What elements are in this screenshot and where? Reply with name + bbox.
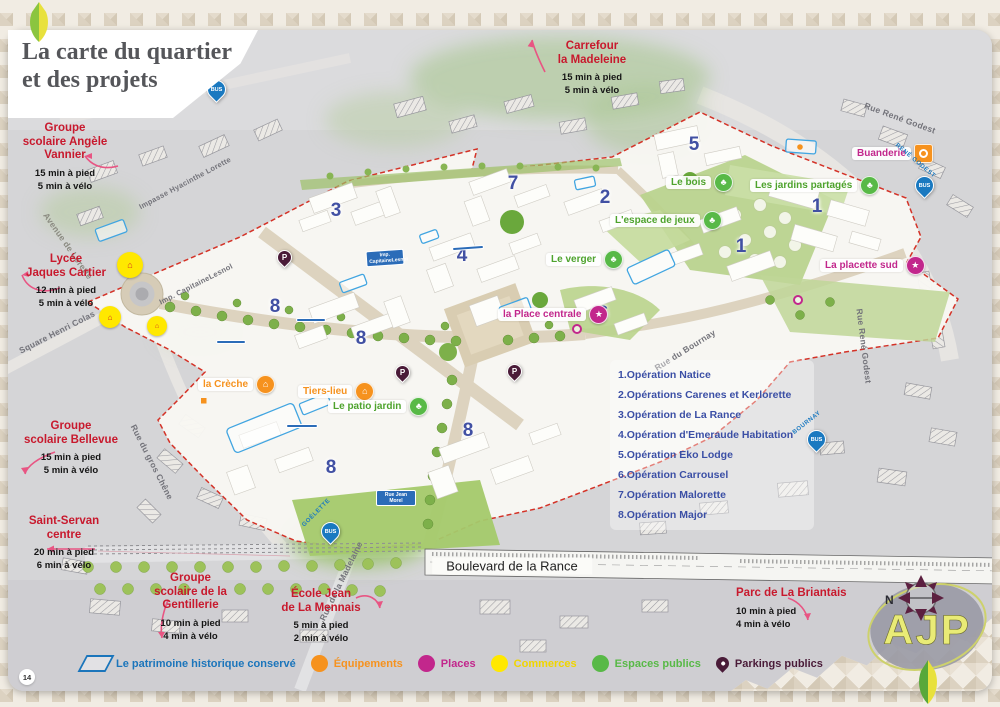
orchard-icon: ♣ [604,250,623,269]
street-sign [286,424,318,428]
operations-list: 1.Opération Natice 2.Opérations Carenes … [610,360,814,530]
poi-ecole-jean-mennais: École Jeande La Mennais 5 min à pied2 mi… [262,588,380,645]
legend-label: Équipements [334,658,403,670]
map-card: 3 7 2 5 1 1 4 8 8 6 8 8 Rue René Godest … [8,30,992,691]
label-verger: Le verger ♣ [546,250,623,269]
street-sign-jean-morel: Rue Jean Morel [376,490,416,506]
legend-item-espaces-publics: Espaces publics [592,655,701,672]
legend-item-parkings: Parkings publics [716,657,823,670]
legend-label: Le patrimoine historique conservé [116,658,296,670]
label-text: Le verger [546,253,601,266]
label-creche: la Crèche ⌂ [198,375,275,394]
page-number: 14 [19,669,35,685]
garden-icon: ♣ [860,176,879,195]
poi-groupe-angele-vannier: Groupescolaire AngèleVannier 15 min à pi… [10,122,120,193]
operation-item: 8.Opération Major [618,505,806,525]
label-placette-sud: La placette sud ★ [820,256,925,275]
legend-label: Commerces [514,658,577,670]
compass-north-label: N [885,593,894,607]
label-text: la Crèche [198,378,253,391]
plot-number: 8 [356,328,367,350]
equipements-dot-icon [311,655,328,672]
patio-icon: ♣ [409,397,428,416]
plot-number: 1 [812,196,823,218]
label-place-centrale: la Place centrale ★ [498,305,608,324]
logo-text: AJP [883,606,971,653]
operation-item: 1.Opération Natice [618,365,806,385]
commerces-dot-icon [491,655,508,672]
operation-item: 7.Opération Malorette [618,485,806,505]
legend-label: Espaces publics [615,658,701,670]
parking-pin-icon [713,654,731,672]
label-text: Le bois [666,176,711,189]
poi-saint-servan-centre: Saint-Servancentre 20 min à pied6 min à … [10,515,118,572]
operation-item: 5.Opération Eko Lodge [618,445,806,465]
label-text: la Place centrale [498,308,586,321]
street-sign [296,318,326,322]
plot-number: 1 [736,236,747,258]
poi-carrefour-madeleine: Carrefourla Madeleine 15 min à pied5 min… [533,40,651,97]
label-patio-jardin: Le patio jardin ♣ [328,397,428,416]
leaf-icon [26,2,52,42]
legend-item-places: Places [418,655,476,672]
plaza-icon: ★ [589,305,608,324]
page: { "page": {"number": "14"}, "title": {"l… [0,0,1000,707]
playground-icon: ♣ [703,211,722,230]
poi-lycee-jaques-cartier: LycéeJaques Cartier 12 min à pied5 min à… [10,253,122,310]
plaza-icon: ★ [906,256,925,275]
legend: Le patrimoine historique conservé Équipe… [82,655,823,672]
plot-number: 7 [508,173,519,195]
commerce-icon: ⌂ [147,316,167,336]
plot-number: 8 [326,457,337,479]
plot-number: 2 [600,187,611,209]
poi-groupe-bellevue: Groupescolaire Bellevue 15 min à pied5 m… [12,420,130,477]
legend-label: Parkings publics [735,658,823,670]
plot-number: 8 [463,420,474,442]
leaf-icon [916,660,940,704]
street-name-boulevard: Boulevard de la Rance [432,558,592,575]
label-espace-jeux: L'espace de jeux ♣ [610,211,722,230]
label-text: Les jardins partagés [750,179,857,192]
tree-icon: ♣ [714,173,733,192]
operation-item: 6.Opération Carrousel [618,465,806,485]
label-text: L'espace de jeux [610,214,700,227]
legend-item-equipements: Équipements [311,655,403,672]
plot-number: 8 [270,296,281,318]
nursery-icon: ⌂ [256,375,275,394]
legend-label: Places [441,658,476,670]
place-marker [572,324,582,334]
label-text: La placette sud [820,259,903,272]
poi-groupe-gentillerie: Groupescolaire de laGentillerie 10 min à… [128,572,253,643]
street-sign: Imp. CapitaineLesnol [365,249,404,268]
plot-number: 3 [331,200,342,222]
label-le-bois: Le bois ♣ [666,173,733,192]
label-jardins-partages: Les jardins partagés ♣ [750,176,879,195]
operation-item: 4.Opération d'Emeraude Habitation [618,425,806,445]
operation-item: 2.Opérations Carenes et Kerlorette [618,385,806,405]
label-buanderie: Buanderie [852,144,933,163]
espaces-dot-icon [592,655,609,672]
heritage-outline-icon [77,655,114,672]
label-text: Le patio jardin [328,400,406,413]
places-dot-icon [418,655,435,672]
operation-item: 3.Opération de La Rance [618,405,806,425]
street-sign [216,340,246,344]
legend-item-commerces: Commerces [491,655,577,672]
place-marker [793,295,803,305]
legend-item-patrimoine: Le patrimoine historique conservé [82,655,296,672]
plot-number: 5 [689,134,700,156]
